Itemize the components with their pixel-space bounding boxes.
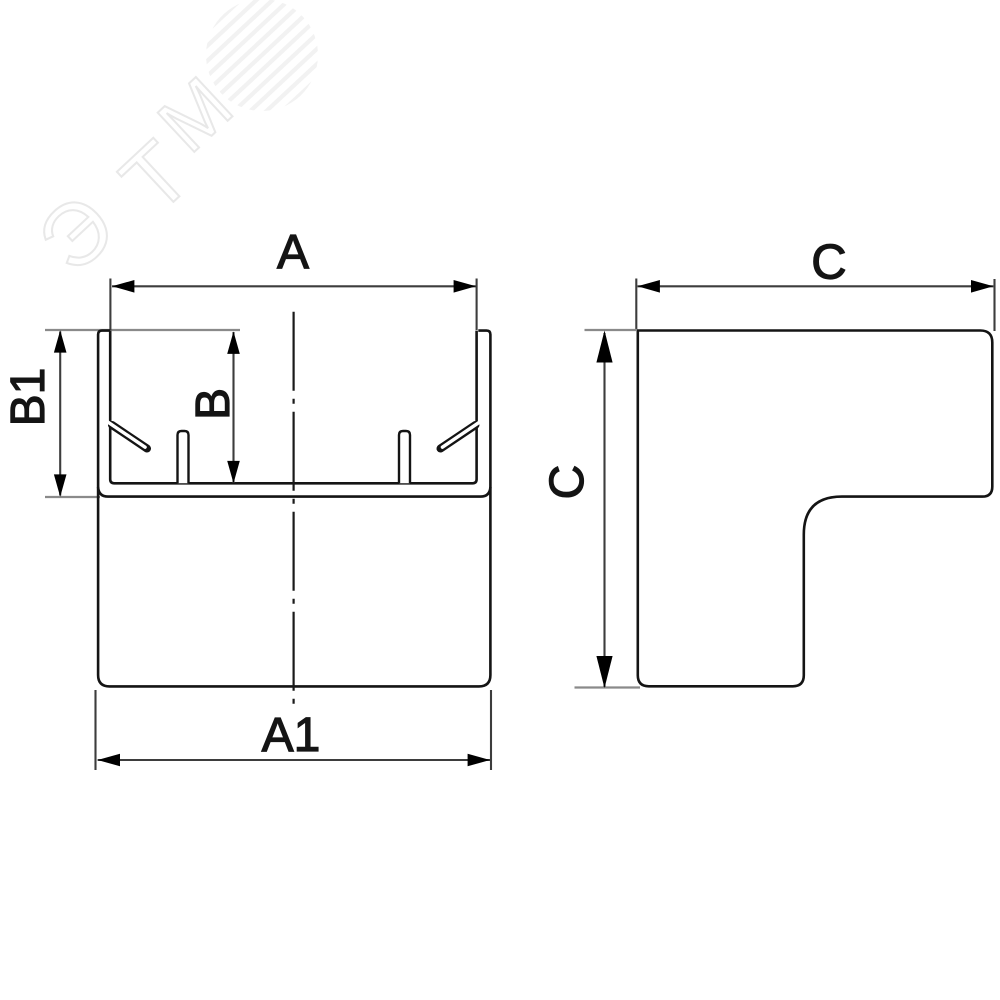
svg-text:C: C (811, 236, 846, 290)
svg-text:A1: A1 (262, 709, 321, 762)
svg-text:C: C (541, 465, 594, 500)
svg-text:B1: B1 (2, 368, 55, 427)
svg-text:B: B (187, 388, 240, 420)
svg-text:Э: Э (19, 175, 133, 291)
svg-text:A: A (277, 226, 309, 279)
